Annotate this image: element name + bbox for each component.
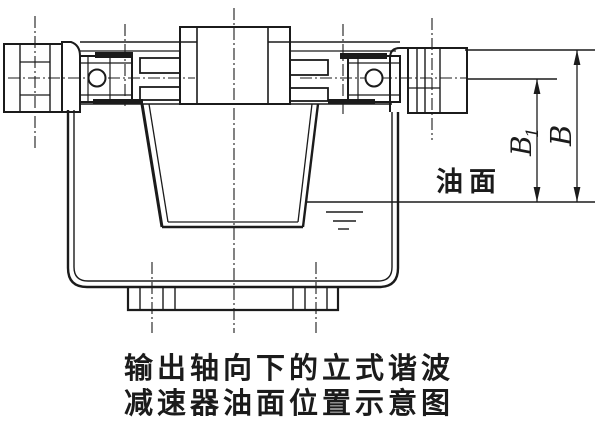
right-flange: [390, 48, 467, 113]
circular-spline-left-upper: [140, 58, 180, 73]
arrow-b-top: [574, 50, 581, 65]
dim-label-b1: B 1: [505, 127, 543, 157]
right-bearing: [348, 56, 400, 102]
dim-label-b1-sub: 1: [523, 127, 543, 138]
oil-level: [307, 202, 595, 229]
caption: 输出轴向下的立式谐波 减速器油面位置示意图: [124, 351, 454, 420]
arrow-b1-bottom: [534, 187, 541, 202]
caption-line-2: 减速器油面位置示意图: [124, 386, 454, 420]
left-bearing: [80, 56, 132, 102]
housing-outer-wall: [68, 110, 398, 287]
left-flange: [4, 42, 80, 112]
flexspline-cup: [142, 104, 318, 227]
left-bearing-ball: [89, 70, 106, 87]
dim-label-b-main: B: [544, 125, 578, 147]
circular-spline-right-upper: [290, 60, 328, 75]
dim-label-b: B: [544, 125, 578, 147]
oil-surface-label: 油面: [436, 167, 502, 198]
caption-line-1: 输出轴向下的立式谐波: [124, 351, 454, 385]
harmonic-reducer-diagram: 油面 B 1 B 输出轴向下的立式谐波 减速器油面位置示意图: [0, 0, 600, 425]
bottom-flange: [128, 287, 338, 310]
arrow-b1-top: [534, 79, 541, 94]
circular-spline-left-lower: [140, 87, 180, 100]
figure-page: 油面 B 1 B 输出轴向下的立式谐波 减速器油面位置示意图: [0, 0, 600, 425]
arrow-b-bottom: [574, 187, 581, 202]
housing: [68, 104, 398, 310]
left-end-plate: [62, 42, 80, 112]
labels: 油面 B 1 B: [436, 125, 578, 198]
housing-inner-wall: [74, 110, 392, 281]
right-bearing-ball: [366, 70, 383, 87]
circular-spline-right-lower: [290, 88, 328, 101]
